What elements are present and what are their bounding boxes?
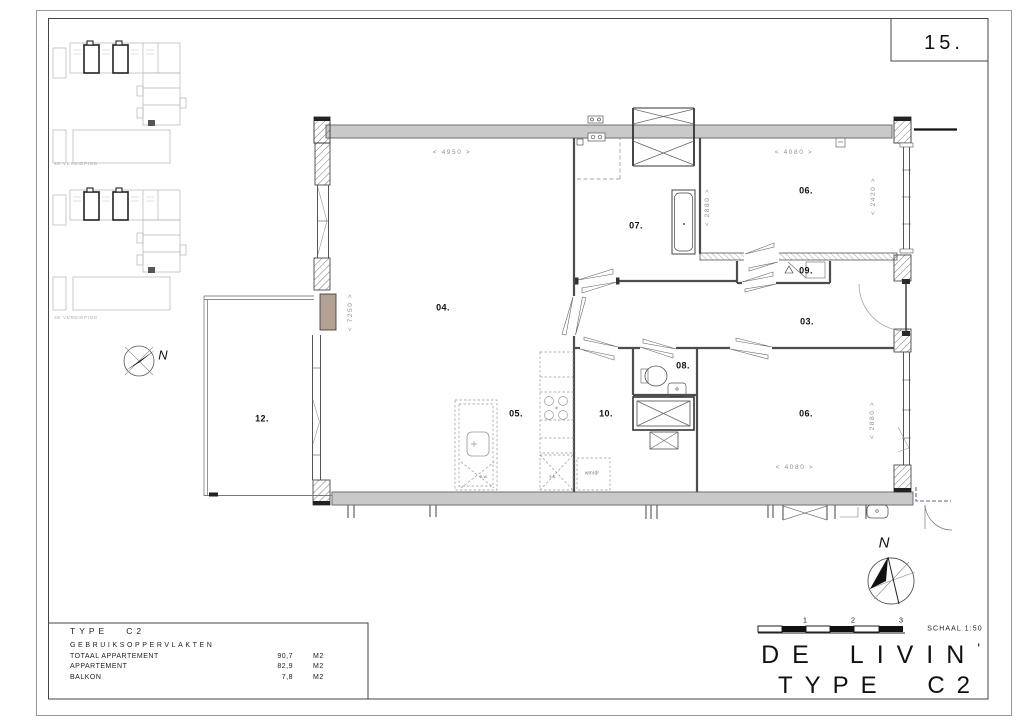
scale-label: SCHAAL 1:50 <box>927 626 982 633</box>
area-table: TYPEC2 GEBRUIKSOPPERVLAKTEN TOTAAL APPAR… <box>70 626 340 681</box>
right-facade <box>894 117 913 492</box>
type-title: TYPE C2 <box>761 672 982 700</box>
bathtub <box>672 190 695 254</box>
scale-tick-3: 3 <box>899 616 903 624</box>
scale-tick-2: 2 <box>851 616 855 624</box>
page-frame <box>37 11 1012 716</box>
room-label-03: 03. <box>800 318 814 327</box>
entry-door <box>859 279 910 336</box>
dim-4080-bottom: < 4080 > <box>776 465 814 472</box>
key-plan-a-caption: 2E VERDIEPING <box>54 162 98 167</box>
door-symbols <box>562 243 779 360</box>
title-block: DE LIVIN' TYPE C2 <box>761 640 982 700</box>
ceiling-dash-line <box>577 138 620 179</box>
dim-4080-top: < 4080 > <box>775 150 813 157</box>
scale-bar <box>758 626 905 633</box>
page-number: 15. <box>924 33 964 53</box>
project-title: DE LIVIN' <box>761 640 982 670</box>
dim-2880-mid: < 2880 > <box>705 188 712 226</box>
compass-right-icon <box>868 557 915 604</box>
key-plan-a <box>53 41 186 163</box>
room-label-12: 12. <box>255 415 269 424</box>
room-label-07: 07. <box>629 222 643 231</box>
neighbour-linework <box>348 505 952 530</box>
north-label-right: N <box>879 536 890 551</box>
smoke-detector <box>836 138 845 147</box>
room-label-09: 09. <box>799 267 813 276</box>
room-label-10: 10. <box>599 410 613 419</box>
service-shaft <box>633 397 694 449</box>
floor-plan-linework <box>0 0 1024 724</box>
dim-2880-bottom: < 2880 > <box>870 401 877 439</box>
insulated-wall <box>700 253 897 260</box>
key-plan-b-caption: 4E VERDIEPING <box>54 316 98 321</box>
revision-annotation-blue <box>916 487 951 501</box>
room-label-04: 04. <box>436 304 450 313</box>
area-table-type: TYPEC2 <box>70 626 340 636</box>
left-facade <box>312 117 336 505</box>
area-row-totaal: TOTAAL APPARTEMENT 90,7 M2 <box>70 653 340 660</box>
island-sink-label: k.w. <box>480 475 488 480</box>
north-label-left: N <box>158 349 167 362</box>
room-label-06-top: 06. <box>799 187 813 196</box>
dim-7250: < 7250 > <box>348 293 355 331</box>
area-row-appartement: APPARTEMENT 82,9 M2 <box>70 663 340 670</box>
area-row-balkon: BALKON 7,8 M2 <box>70 674 340 681</box>
area-table-header: GEBRUIKSOPPERVLAKTEN <box>70 642 340 649</box>
compass-left-icon <box>124 346 155 376</box>
room-label-08: 08. <box>676 362 690 371</box>
fridge-label: k.k. <box>549 475 556 480</box>
outer-walls <box>326 125 913 505</box>
dim-4950: < 4950 > <box>433 150 471 157</box>
room-label-05: 05. <box>509 410 523 419</box>
floorplan-sheet: 15. 2E VERDIEPING 4E VERDIEPING N N 03. … <box>0 0 1024 724</box>
washer-dryer-label: wm/dr <box>585 472 600 477</box>
scale-tick-1: 1 <box>803 616 807 624</box>
apostrophe: ' <box>977 640 982 656</box>
kitchen-furniture <box>455 352 610 490</box>
toilet-fixtures <box>641 366 686 396</box>
interior-walls <box>574 138 894 492</box>
key-plan-b <box>53 188 186 310</box>
dim-2420: < 2420 > <box>871 177 878 215</box>
room-label-06-bottom: 06. <box>799 410 813 419</box>
